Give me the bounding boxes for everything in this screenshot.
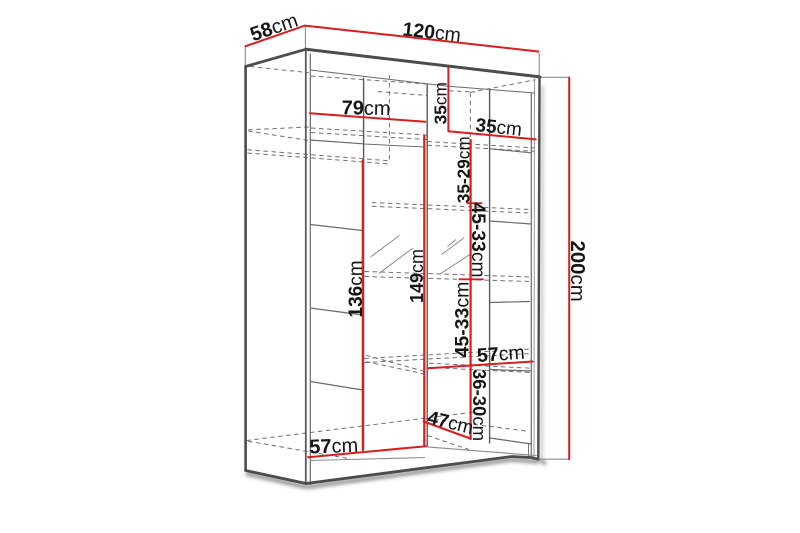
svg-text:136cm: 136cm [346, 260, 367, 317]
svg-text:45-33cm: 45-33cm [452, 282, 474, 358]
svg-text:57cm: 57cm [309, 435, 359, 459]
svg-text:57cm: 57cm [476, 342, 525, 367]
svg-text:149cm: 149cm [407, 249, 427, 303]
svg-text:79cm: 79cm [341, 97, 390, 120]
svg-text:36-30cm: 36-30cm [469, 369, 490, 441]
svg-text:35-29cm: 35-29cm [453, 136, 473, 203]
svg-text:35cm: 35cm [431, 82, 451, 124]
svg-text:200cm: 200cm [566, 241, 588, 302]
svg-text:45-33cm: 45-33cm [467, 203, 488, 278]
